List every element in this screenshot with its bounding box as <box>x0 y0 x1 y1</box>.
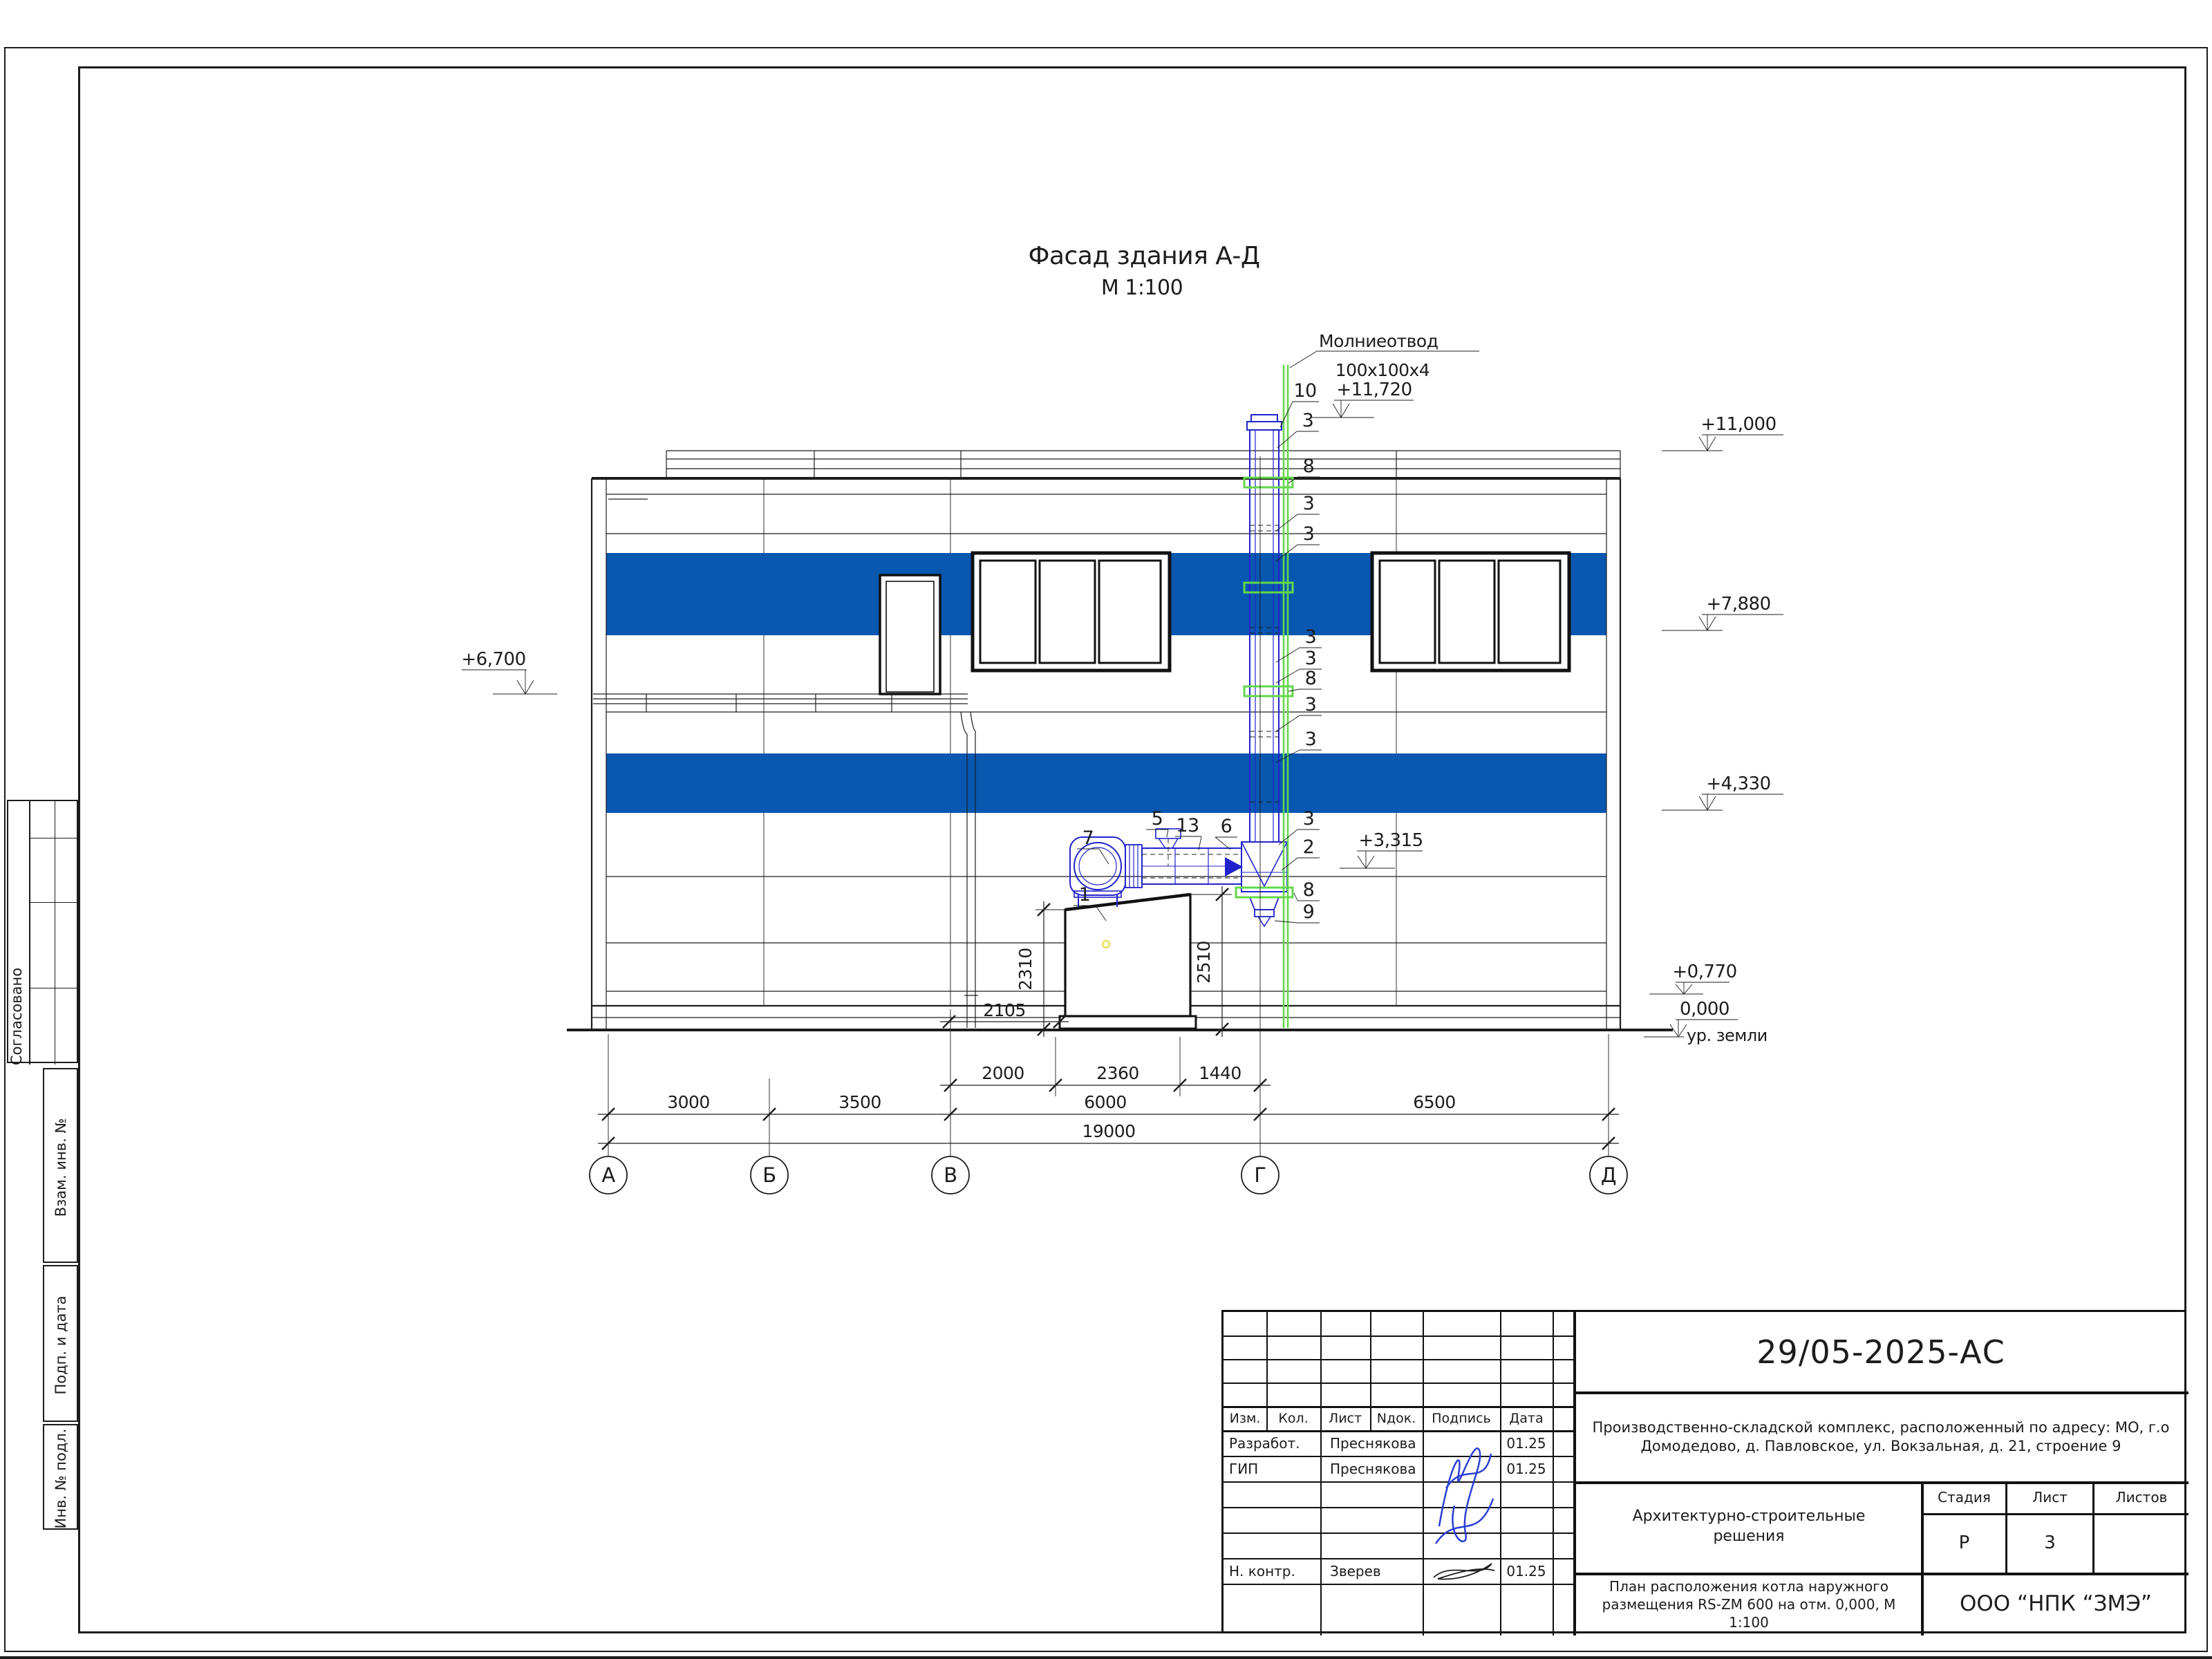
tb-header-ndok: Nдок. <box>1370 1407 1423 1430</box>
svg-text:6: 6 <box>1221 816 1232 837</box>
svg-text:+11,000: +11,000 <box>1700 414 1776 435</box>
svg-text:ур. земли: ур. земли <box>1687 1026 1768 1045</box>
blue-band-lower <box>606 753 1606 813</box>
svg-text:3: 3 <box>1303 493 1315 514</box>
dim-2360: 2360 <box>1096 1063 1139 1083</box>
dim-1440: 1440 <box>1199 1063 1241 1083</box>
vzam-stamp-box: Взам. инв. № <box>43 1068 78 1263</box>
chimney-tee <box>1241 842 1287 892</box>
tb-stage-value: Р <box>1923 1515 2005 1573</box>
annex-roof-edge <box>593 694 968 712</box>
svg-text:2: 2 <box>1303 836 1315 858</box>
tb-sheet-title: План расположения котла наружного размещ… <box>1583 1575 1915 1633</box>
dim-row-axes: 3000 3500 6000 6500 <box>598 1092 1619 1121</box>
dim-2510: 2510 <box>1194 941 1214 984</box>
elevation-mark-7880: +7,880 <box>1662 594 1783 630</box>
drawing-sheet: Фасад здания А-Д М 1:100 Молниеотвод 100… <box>0 0 2212 1659</box>
sidebar-label-agreed: Согласовано <box>8 968 25 1065</box>
approval-stamp-box: Согласовано <box>7 800 78 1063</box>
tb-section-name: Архитектурно-строительные решения <box>1597 1483 1901 1571</box>
tb-header-data: Дата <box>1500 1407 1553 1430</box>
svg-text:Д: Д <box>1601 1163 1616 1187</box>
svg-text:8: 8 <box>1305 668 1317 689</box>
tb-document-code: 29/05-2025-АС <box>1573 1316 2188 1389</box>
svg-text:Молниеотвод: Молниеотвод <box>1319 331 1438 351</box>
svg-text:0,000: 0,000 <box>1680 999 1730 1020</box>
sidebar-label-inv: Инв. № подл. <box>53 1427 69 1530</box>
elevation-mark-11720: +11,720 <box>1312 379 1414 418</box>
elevation-mark-4330: +4,330 <box>1662 774 1783 810</box>
inv-stamp-box: Инв. № подл. <box>43 1424 78 1530</box>
svg-text:+3,315: +3,315 <box>1358 830 1423 851</box>
tb-row-name: Преснякова <box>1324 1430 1421 1456</box>
svg-text:10: 10 <box>1293 380 1316 402</box>
tb-row-date: 01.25 <box>1500 1558 1553 1584</box>
svg-text:3: 3 <box>1305 729 1317 750</box>
svg-text:3: 3 <box>1305 648 1317 669</box>
dim-6500: 6500 <box>1413 1092 1456 1112</box>
sidebar-label-vzam: Взам. инв. № <box>53 1116 69 1219</box>
drawing-title: Фасад здания А-Д <box>1028 242 1259 270</box>
svg-text:3: 3 <box>1303 523 1315 545</box>
tb-header-sheets: Листов <box>2094 1483 2188 1512</box>
tb-row-name: Зверев <box>1324 1558 1421 1584</box>
svg-text:+6,700: +6,700 <box>461 649 525 670</box>
axis-bubble-b: Б <box>751 1156 788 1194</box>
axis-bubble-g: Г <box>1241 1156 1279 1194</box>
signature-designer <box>1425 1423 1499 1554</box>
svg-text:3: 3 <box>1305 694 1317 715</box>
dim-2000: 2000 <box>982 1063 1024 1083</box>
tb-row-name: Преснякова <box>1324 1456 1421 1481</box>
dim-3000: 3000 <box>667 1092 710 1112</box>
svg-text:8: 8 <box>1303 456 1315 477</box>
title-block: Изм. Кол. Лист Nдок. Подпись Дата Разраб… <box>1221 1310 2186 1633</box>
dim-3500: 3500 <box>838 1092 881 1112</box>
svg-text:8: 8 <box>1303 879 1315 901</box>
svg-text:А: А <box>601 1163 615 1187</box>
elevation-mark-0770: +0,770 <box>1649 962 1737 994</box>
axis-bubble-v: В <box>932 1156 969 1194</box>
tb-project-name: Производственно-складской комплекс, расп… <box>1583 1395 2179 1479</box>
dim-19000: 19000 <box>1082 1121 1135 1141</box>
svg-text:+4,330: +4,330 <box>1706 774 1770 794</box>
tb-sheets-value <box>2094 1515 2188 1573</box>
elevation-mark-3315: +3,315 <box>1340 830 1423 868</box>
tb-header-izm: Изм. <box>1224 1407 1266 1430</box>
svg-text:3: 3 <box>1305 626 1317 648</box>
dim-2105: 2105 <box>983 1000 1026 1020</box>
tb-sheet-value: 3 <box>2007 1515 2092 1573</box>
tb-row-date: 01.25 <box>1500 1456 1553 1481</box>
svg-text:9: 9 <box>1303 901 1315 923</box>
tb-header-stage: Стадия <box>1923 1483 2005 1512</box>
tb-row-role: Н. контр. <box>1224 1558 1320 1584</box>
boiler-indicator-dot <box>1103 941 1109 948</box>
sheet-bottom-edge <box>0 1656 2212 1659</box>
svg-text:7: 7 <box>1082 827 1094 849</box>
dim-6000: 6000 <box>1084 1092 1127 1112</box>
flue-duct <box>1070 829 1241 907</box>
window-bank-right <box>1372 553 1569 671</box>
tb-header-kol: Кол. <box>1266 1407 1320 1430</box>
svg-text:+11,720: +11,720 <box>1336 379 1412 400</box>
svg-text:13: 13 <box>1176 815 1199 836</box>
svg-text:+0,770: +0,770 <box>1672 962 1736 982</box>
callout-13: 13 <box>1175 815 1201 850</box>
dim-2310: 2310 <box>1015 948 1035 991</box>
dim-row-sub: 2000 2360 1440 <box>940 1063 1271 1091</box>
window-bank-left <box>973 553 1170 671</box>
tb-company-name: ООО “НПК “ЗМЭ” <box>1923 1575 2188 1633</box>
svg-text:Б: Б <box>762 1163 776 1187</box>
axis-bubble-a: А <box>590 1156 627 1194</box>
svg-text:3: 3 <box>1302 410 1314 431</box>
signature-checker <box>1431 1559 1497 1583</box>
callout-6: 6 <box>1215 816 1237 850</box>
dim-row-total: 19000 <box>598 1121 1619 1150</box>
svg-text:5: 5 <box>1152 808 1163 829</box>
chimney <box>1225 415 1287 926</box>
svg-text:1: 1 <box>1079 884 1091 906</box>
svg-text:+7,880: +7,880 <box>1706 594 1770 615</box>
svg-text:100х100х4: 100х100х4 <box>1335 360 1430 380</box>
podp-stamp-box: Подп. и дата <box>43 1265 78 1422</box>
svg-text:3: 3 <box>1303 808 1315 829</box>
axis-bubbles: А Б В Г Д <box>590 1156 1627 1194</box>
tb-row-role: Разработ. <box>1224 1430 1320 1456</box>
callout-8: 8 <box>1294 879 1320 901</box>
tb-header-list: Лист <box>1320 1407 1370 1430</box>
entrance-door <box>880 575 940 694</box>
lightning-rod-label: Молниеотвод 100х100х4 <box>1290 331 1479 380</box>
tb-row-role: ГИП <box>1224 1456 1320 1481</box>
elevation-mark-0000: 0,000 ур. земли <box>1644 999 1768 1045</box>
elevation-mark-6700: +6,700 <box>461 649 557 694</box>
elevation-mark-11000: +11,000 <box>1662 414 1783 451</box>
boiler <box>1060 894 1196 1029</box>
svg-text:Г: Г <box>1254 1163 1266 1187</box>
sidebar-label-podp: Подп. и дата <box>53 1293 69 1397</box>
chimney-drain <box>1250 897 1279 910</box>
svg-text:В: В <box>944 1163 957 1187</box>
tb-row-date: 01.25 <box>1500 1430 1553 1456</box>
axis-bubble-d: Д <box>1590 1156 1627 1194</box>
tb-header-sheet: Лист <box>2007 1483 2092 1512</box>
callout-9: 9 <box>1275 901 1320 923</box>
drawing-scale: М 1:100 <box>1101 276 1183 300</box>
lightning-rod <box>1236 365 1293 1028</box>
callout-7: 7 <box>1077 827 1109 864</box>
